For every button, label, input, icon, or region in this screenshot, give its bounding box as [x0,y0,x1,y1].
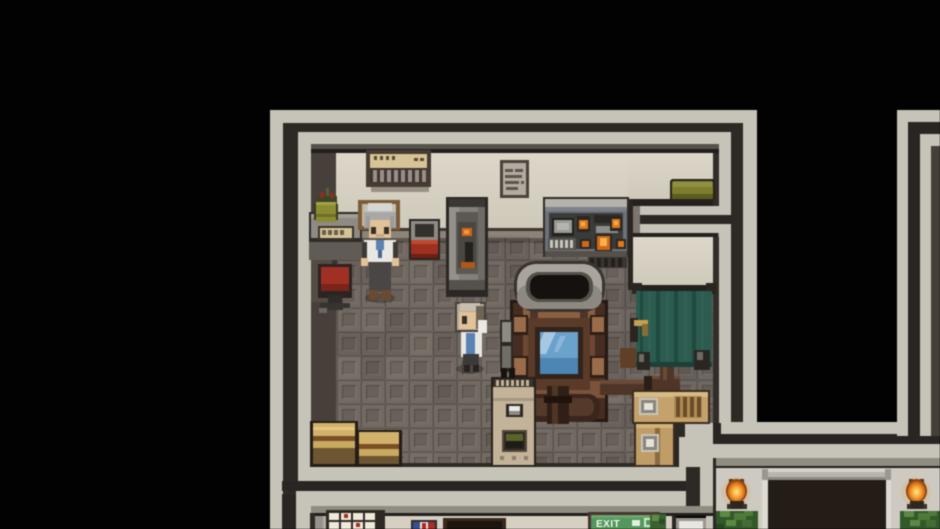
svg-text:EXIT: EXIT [596,519,620,529]
